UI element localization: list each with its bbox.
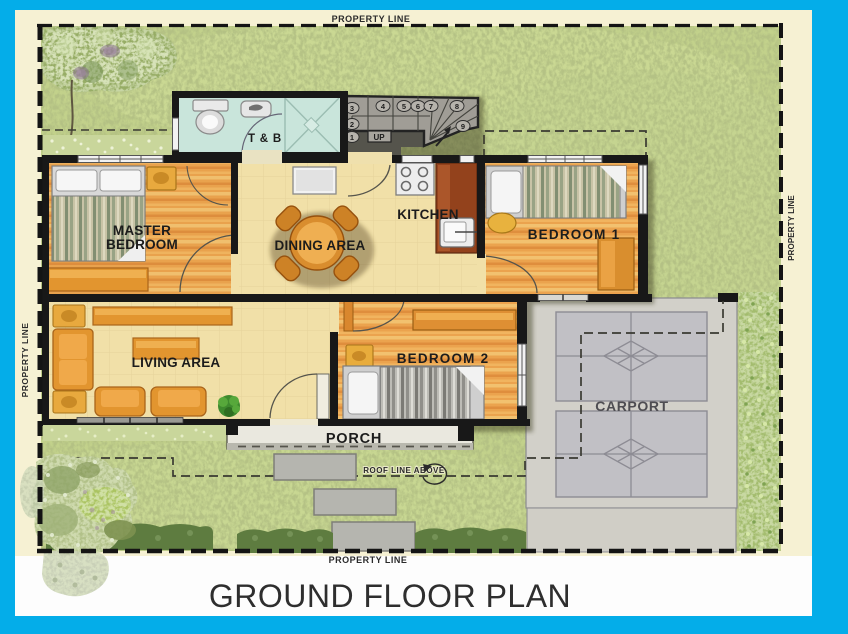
- svg-text:3: 3: [350, 104, 354, 113]
- svg-text:GROUND FLOOR PLAN: GROUND FLOOR PLAN: [209, 578, 571, 614]
- svg-text:8: 8: [455, 102, 459, 111]
- svg-text:2: 2: [350, 120, 354, 129]
- svg-text:LIVING AREA: LIVING AREA: [132, 355, 221, 370]
- svg-text:1: 1: [350, 133, 354, 142]
- svg-text:BEDROOM: BEDROOM: [106, 237, 178, 252]
- svg-text:5: 5: [402, 102, 406, 111]
- svg-text:MASTER: MASTER: [113, 223, 171, 238]
- svg-text:BEDROOM 2: BEDROOM 2: [397, 351, 490, 366]
- svg-text:CARPORT: CARPORT: [595, 398, 668, 414]
- svg-text:PROPERTY LINE: PROPERTY LINE: [787, 195, 796, 261]
- svg-text:PROPERTY LINE: PROPERTY LINE: [332, 14, 411, 24]
- svg-text:KITCHEN: KITCHEN: [397, 207, 458, 222]
- svg-text:7: 7: [429, 102, 433, 111]
- svg-text:BEDROOM 1: BEDROOM 1: [528, 227, 621, 242]
- svg-text:PROPERTY LINE: PROPERTY LINE: [329, 555, 408, 565]
- svg-text:6: 6: [416, 102, 420, 111]
- svg-text:PROPERTY LINE: PROPERTY LINE: [20, 323, 30, 398]
- svg-text:UP: UP: [373, 133, 385, 142]
- svg-text:9: 9: [461, 122, 465, 131]
- svg-text:ROOF LINE ABOVE: ROOF LINE ABOVE: [363, 466, 445, 475]
- svg-text:DINING AREA: DINING AREA: [275, 238, 366, 253]
- svg-text:T & B: T & B: [248, 133, 282, 145]
- svg-text:PORCH: PORCH: [326, 431, 382, 447]
